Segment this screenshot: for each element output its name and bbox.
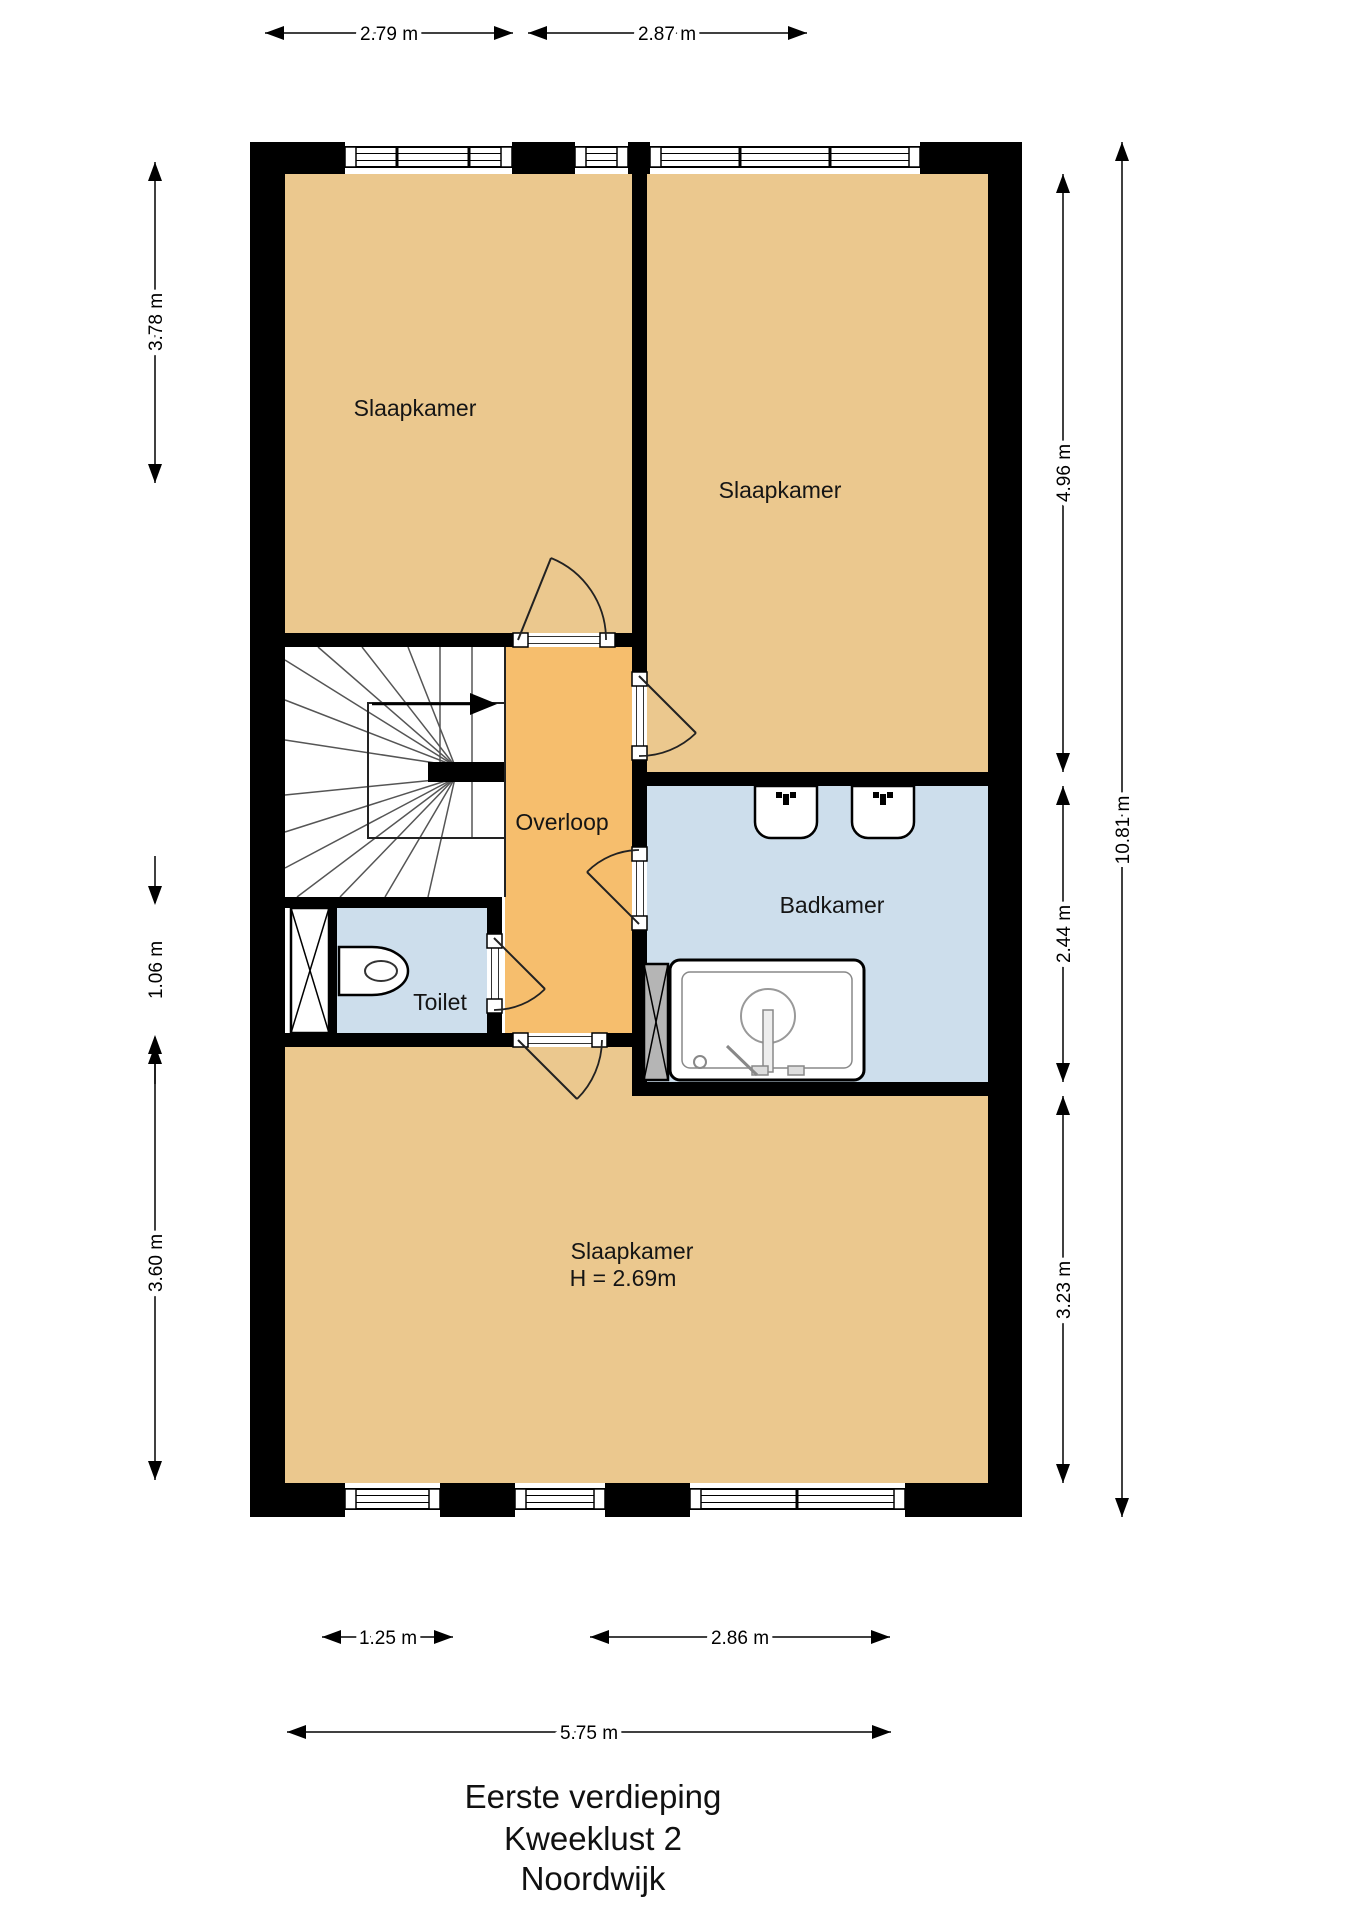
label-slaapkamer-bottom-height: H = 2.69m bbox=[570, 1265, 677, 1291]
dimension-label: 2.44 m bbox=[1054, 905, 1075, 963]
bathtub-icon bbox=[670, 960, 864, 1080]
dimension-label: 2.79 m bbox=[360, 24, 418, 45]
label-toilet: Toilet bbox=[413, 989, 467, 1015]
room-slaapkamer-top-right bbox=[647, 174, 988, 772]
wall-bedroom-divider bbox=[632, 174, 647, 672]
dimension-left-1: 3.78 m bbox=[146, 162, 167, 483]
dimension-label: 4.96 m bbox=[1054, 444, 1075, 502]
duct-x-icon bbox=[291, 908, 329, 1033]
dimension-bottom-total: 5.75 m bbox=[287, 1723, 891, 1744]
dimension-top-left: 2.79 m bbox=[265, 24, 513, 45]
window-icon bbox=[345, 147, 512, 167]
stair-direction-arrow-icon bbox=[372, 693, 497, 715]
wall-badkamer-bottom bbox=[632, 1082, 988, 1096]
dimension-label: 1.25 m bbox=[359, 1628, 417, 1649]
dimension-bottom-1: 1.25 m bbox=[322, 1628, 453, 1649]
title-floor: Eerste verdieping bbox=[465, 1778, 722, 1815]
sink-icon bbox=[852, 786, 914, 838]
dimension-label: 1.06 m bbox=[146, 941, 167, 999]
dimension-label: 3.23 m bbox=[1054, 1261, 1075, 1319]
label-overloop: Overloop bbox=[515, 809, 608, 835]
sink-icon bbox=[755, 786, 817, 838]
label-slaapkamer-top-left: Slaapkamer bbox=[354, 395, 477, 421]
dimension-bottom-2: 2.86 m bbox=[590, 1628, 890, 1649]
dimension-right-total: 10.81 m bbox=[1113, 142, 1134, 1517]
label-slaapkamer-bottom: Slaapkamer bbox=[571, 1238, 694, 1264]
dimension-top-right: 2.87 m bbox=[528, 24, 807, 45]
wall-badkamer-top bbox=[632, 772, 988, 786]
title-city: Noordwijk bbox=[521, 1860, 666, 1897]
dimension-label: 5.75 m bbox=[560, 1723, 618, 1744]
window-icon bbox=[345, 1489, 440, 1509]
dimension-label: 3.78 m bbox=[146, 293, 167, 351]
window-icon bbox=[575, 147, 628, 167]
dimension-label: 2.86 m bbox=[711, 1628, 769, 1649]
dimension-right-2: 2.44 m bbox=[1054, 786, 1075, 1082]
window-icon bbox=[515, 1489, 605, 1509]
floorplan-page: 2.79 m 2.87 m 3.78 m 1.06 m 3.60 m bbox=[0, 0, 1358, 1920]
dimension-left-3: 3.60 m bbox=[146, 1045, 167, 1480]
dimension-label: 10.81 m bbox=[1113, 796, 1134, 865]
wall-left bbox=[250, 142, 285, 1517]
title-address: Kweeklust 2 bbox=[504, 1820, 682, 1857]
label-slaapkamer-top-right: Slaapkamer bbox=[719, 477, 842, 503]
label-badkamer: Badkamer bbox=[780, 892, 885, 918]
plan-title: Eerste verdieping Kweeklust 2 Noordwijk bbox=[465, 1778, 722, 1897]
toilet-icon bbox=[339, 947, 408, 995]
window-icon bbox=[650, 147, 920, 167]
dimension-label: 3.60 m bbox=[146, 1234, 167, 1292]
dimension-label: 2.87 m bbox=[638, 24, 696, 45]
floorplan-canvas: 2.79 m 2.87 m 3.78 m 1.06 m 3.60 m bbox=[0, 0, 1358, 1920]
window-icon bbox=[690, 1489, 905, 1509]
stair-newel bbox=[428, 762, 505, 782]
duct-x-icon bbox=[644, 964, 668, 1080]
dimension-right-3: 3.23 m bbox=[1054, 1096, 1075, 1483]
wall-right bbox=[988, 142, 1022, 1517]
dimension-right-1: 4.96 m bbox=[1054, 174, 1075, 772]
stairs-icon bbox=[285, 647, 505, 897]
room-overloop bbox=[505, 647, 632, 1033]
